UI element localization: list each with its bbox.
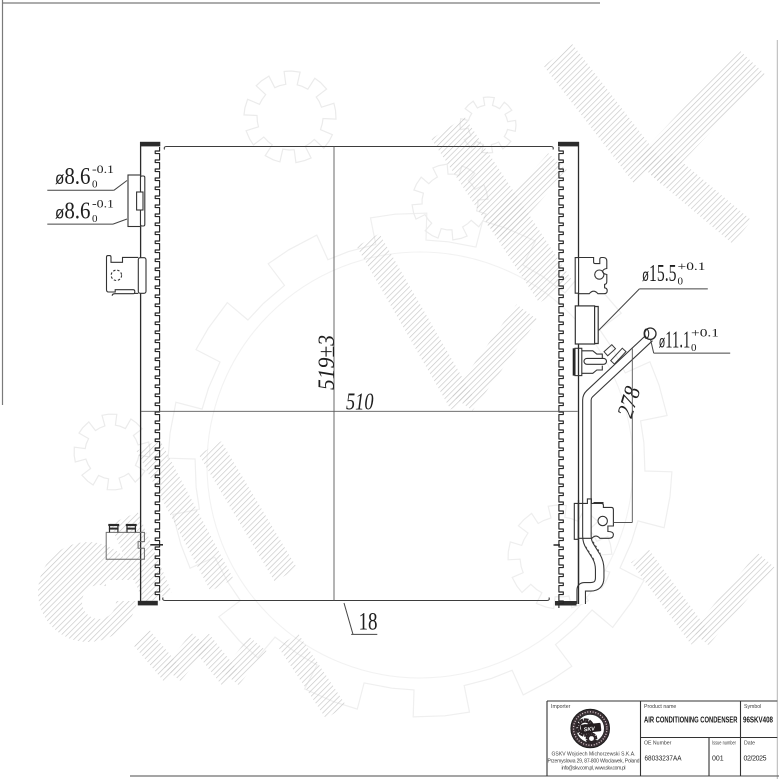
- svg-text:OE Number: OE Number: [644, 741, 672, 747]
- svg-text:02/2025: 02/2025: [744, 756, 767, 763]
- svg-text:-0.1: -0.1: [92, 197, 114, 211]
- svg-text:0: 0: [691, 342, 697, 354]
- svg-text:Product name: Product name: [644, 704, 676, 710]
- svg-text:ø8.6: ø8.6: [55, 198, 91, 224]
- svg-text:519±3: 519±3: [314, 335, 339, 390]
- svg-text:ø11.1: ø11.1: [659, 328, 691, 354]
- svg-text:SKV: SKV: [583, 726, 595, 733]
- svg-text:Issue number: Issue number: [712, 741, 736, 747]
- svg-text:Przemyslowa 29, 87-800 Wloclaw: Przemyslowa 29, 87-800 Wloclawek, Poland: [548, 759, 640, 765]
- svg-text:510: 510: [346, 390, 374, 416]
- svg-text:GSKV Wojciech Michorzewski S.K: GSKV Wojciech Michorzewski S.K.A.: [552, 752, 636, 758]
- svg-text:+0.1: +0.1: [678, 259, 706, 273]
- svg-text:ø15.5: ø15.5: [642, 261, 677, 287]
- svg-text:+0.1: +0.1: [691, 326, 719, 340]
- svg-text:-0.1: -0.1: [92, 162, 114, 176]
- svg-text:AIR CONDITIONING CONDENSER: AIR CONDITIONING CONDENSER: [644, 715, 738, 725]
- svg-text:Importer: Importer: [551, 704, 571, 710]
- svg-text:info@skv.com.pl, www.skv.com.p: info@skv.com.pl, www.skv.com.pl: [562, 766, 626, 772]
- svg-text:68033237AA: 68033237AA: [645, 756, 682, 763]
- svg-text:0: 0: [678, 276, 684, 288]
- svg-text:18: 18: [359, 609, 378, 636]
- svg-text:Date: Date: [744, 741, 755, 747]
- svg-text:0: 0: [92, 179, 98, 191]
- svg-text:001: 001: [712, 756, 724, 763]
- svg-text:0: 0: [92, 213, 98, 225]
- svg-text:96SKV408: 96SKV408: [743, 715, 773, 725]
- svg-text:ø8.6: ø8.6: [55, 164, 91, 190]
- svg-text:Symbol: Symbol: [744, 704, 761, 710]
